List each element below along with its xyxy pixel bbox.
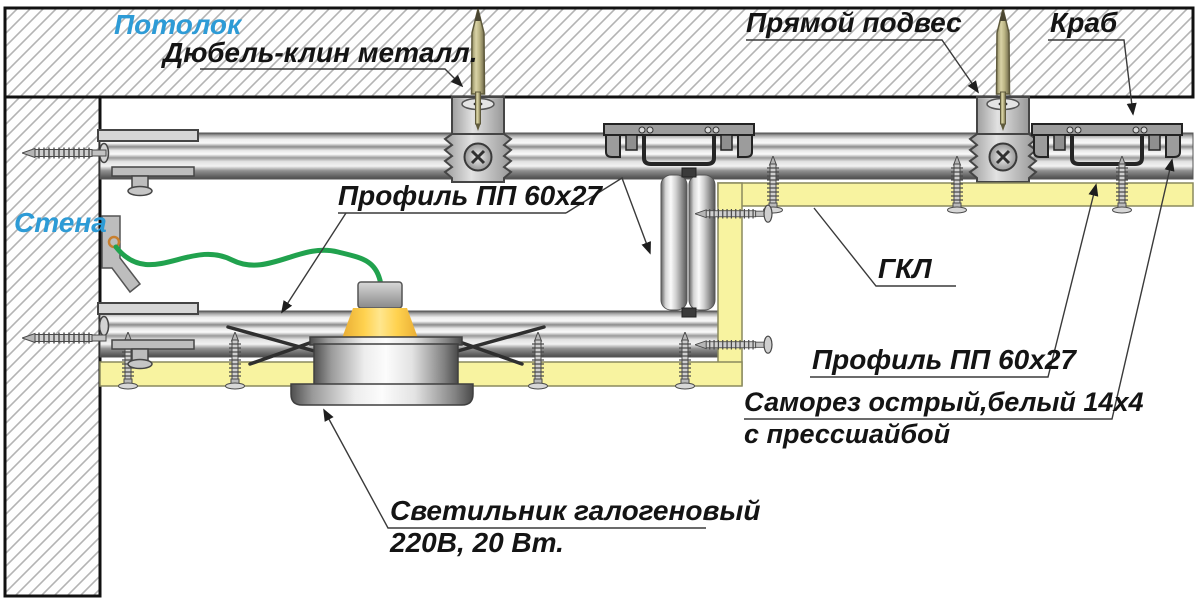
- lamp-bulb-glow: [341, 308, 419, 341]
- wall-label: Стена: [14, 207, 107, 238]
- power-wire: [116, 247, 381, 285]
- gkl-label: ГКЛ: [878, 253, 932, 284]
- wall-hatch: [5, 97, 100, 596]
- lamp-trim-ring: [291, 384, 473, 405]
- ceiling-label: Потолок: [114, 9, 243, 40]
- step-vertical-profile-1: [661, 175, 687, 310]
- lamp-label-line1: Светильник галогеновый: [390, 495, 760, 526]
- lamp-housing: [314, 344, 458, 385]
- step-vertical-profile-2: [689, 175, 715, 310]
- leader-profile-mid-left: [282, 213, 346, 312]
- anchor-label: Дюбель-клин металл.: [161, 37, 478, 68]
- lamp-label-line2: 220В, 20 Вт.: [389, 527, 564, 558]
- lamp-cap: [358, 282, 402, 308]
- step-screw-washer: [764, 336, 772, 353]
- diagram-canvas: Потолок Дюбель-клин металл. Прямой подве…: [0, 0, 1196, 603]
- step-screw: [695, 340, 768, 350]
- profile-right-label: Профиль ПП 60х27: [812, 344, 1077, 375]
- profile-mid-label: Профиль ПП 60х27: [338, 180, 603, 211]
- direct-hanger-label: Прямой подвес: [746, 7, 962, 38]
- step-screw: [695, 209, 768, 219]
- step-profile-clip-bottom: [682, 308, 696, 317]
- ceiling-construction-diagram: Потолок Дюбель-клин металл. Прямой подве…: [0, 0, 1196, 603]
- crab-label: Краб: [1050, 7, 1118, 38]
- step-profile-clip-top: [682, 168, 696, 177]
- step-screw-washer: [764, 205, 772, 222]
- screw-label-line1: Саморез острый,белый 14х4: [744, 387, 1143, 417]
- screw-label-line2: с прессшайбой: [744, 419, 951, 449]
